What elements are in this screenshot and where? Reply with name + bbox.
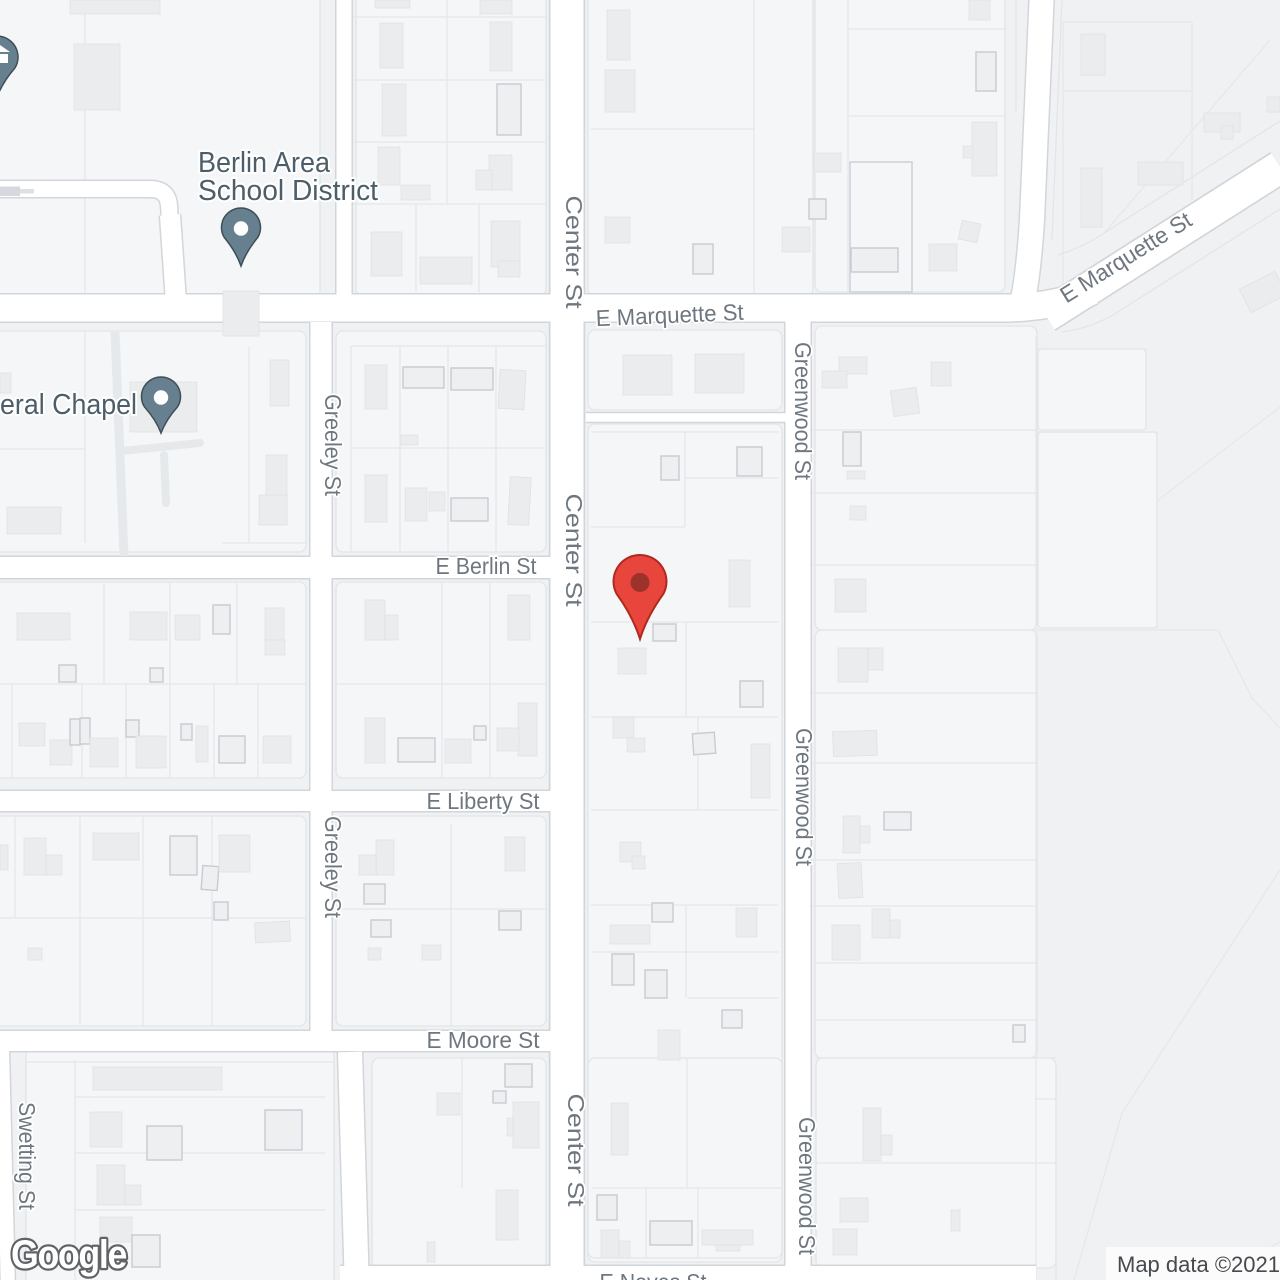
svg-text:E Berlin St: E Berlin St (436, 553, 538, 579)
svg-text:Center St: Center St (561, 196, 587, 310)
svg-text:Greenwood St: Greenwood St (791, 728, 817, 867)
svg-text:Greeley St: Greeley St (320, 816, 346, 919)
svg-text:eral Chapel: eral Chapel (0, 389, 137, 421)
svg-text:Greenwood St: Greenwood St (790, 342, 816, 481)
svg-text:Greeley St: Greeley St (320, 394, 346, 497)
svg-text:Center St: Center St (561, 494, 587, 608)
svg-text:Google: Google (11, 1233, 126, 1277)
svg-text:E Noyes St: E Noyes St (600, 1269, 708, 1280)
svg-text:Center St: Center St (563, 1094, 589, 1208)
svg-text:Greenwood St: Greenwood St (794, 1117, 820, 1256)
svg-text:E Liberty St: E Liberty St (427, 788, 541, 814)
svg-text:Map data ©2021: Map data ©2021 (1117, 1252, 1280, 1277)
svg-text:E Moore St: E Moore St (427, 1027, 541, 1053)
svg-text:Swetting St: Swetting St (14, 1102, 40, 1211)
svg-text:School District: School District (198, 175, 378, 207)
